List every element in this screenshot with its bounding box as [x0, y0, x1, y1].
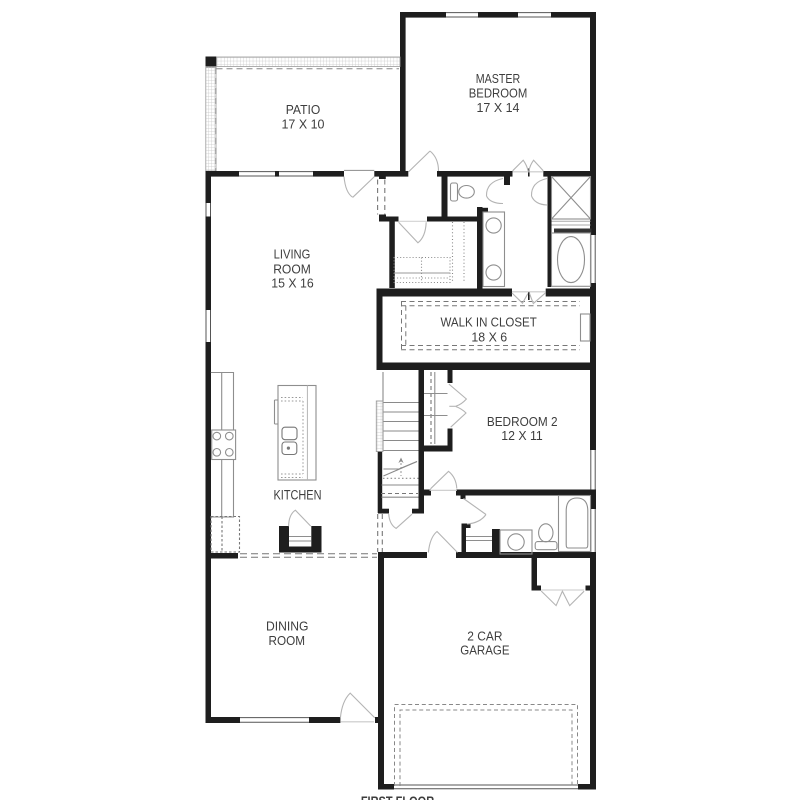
svg-text:BEDROOM 2: BEDROOM 2: [487, 415, 558, 429]
svg-text:17 X 10: 17 X 10: [282, 118, 325, 132]
svg-text:ROOM: ROOM: [269, 634, 306, 648]
svg-text:BEDROOM: BEDROOM: [469, 87, 528, 101]
svg-text:18 X 6: 18 X 6: [471, 331, 507, 345]
svg-text:KITCHEN: KITCHEN: [274, 488, 322, 503]
svg-text:12 X 11: 12 X 11: [501, 429, 543, 443]
svg-text:2 CAR: 2 CAR: [467, 630, 502, 644]
svg-text:DINING: DINING: [266, 620, 309, 634]
svg-text:FIRST FLOOR: FIRST FLOOR: [361, 795, 434, 800]
svg-text:17 X 14: 17 X 14: [477, 101, 520, 115]
svg-text:MASTER: MASTER: [476, 72, 521, 86]
svg-text:15 X 16: 15 X 16: [271, 277, 313, 291]
svg-text:WALK IN CLOSET: WALK IN CLOSET: [440, 316, 537, 330]
svg-text:GARAGE: GARAGE: [460, 644, 509, 658]
svg-text:PATIO: PATIO: [286, 103, 321, 117]
svg-text:ROOM: ROOM: [273, 263, 311, 277]
svg-text:LIVING: LIVING: [274, 248, 311, 262]
